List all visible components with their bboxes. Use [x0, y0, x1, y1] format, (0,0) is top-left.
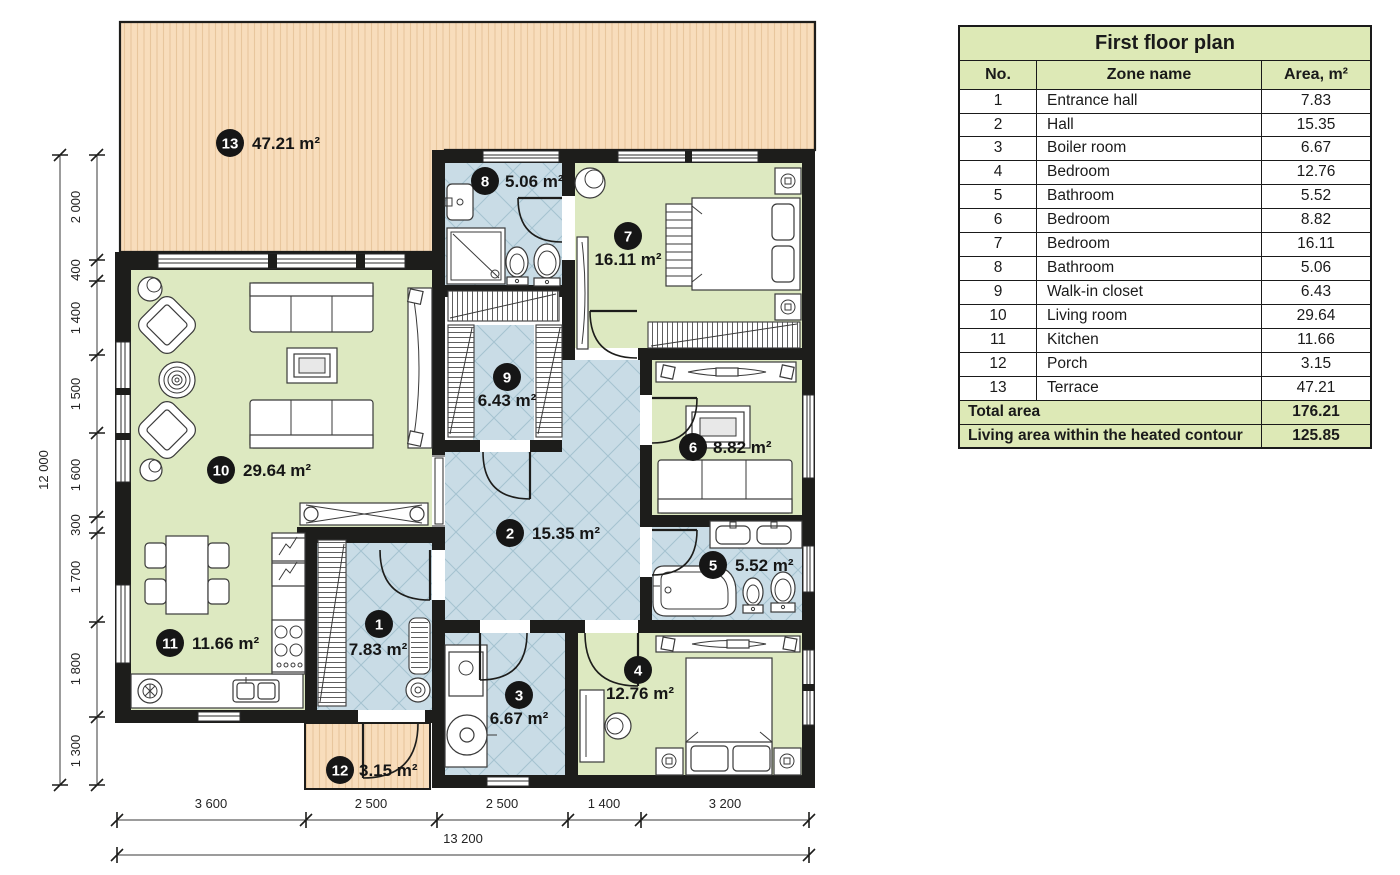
cell-area: 7.83 — [1262, 89, 1372, 113]
table-row: 9 Walk-in closet 6.43 — [959, 280, 1371, 304]
svg-text:7.83 m²: 7.83 m² — [349, 640, 408, 659]
svg-text:47.21 m²: 47.21 m² — [252, 134, 320, 153]
window-living-top — [158, 254, 405, 268]
svg-text:1 800: 1 800 — [68, 653, 83, 686]
rug — [159, 362, 195, 398]
svg-text:1 500: 1 500 — [68, 378, 83, 411]
svg-text:1 300: 1 300 — [68, 735, 83, 768]
window-room5-right — [803, 546, 814, 592]
cell-zone: Boiler room — [1037, 137, 1262, 161]
cell-zone: Bedroom — [1037, 209, 1262, 233]
table-row: 5 Bathroom 5.52 — [959, 185, 1371, 209]
toilet — [534, 244, 560, 286]
room-label-12: 12 3.15 m² — [326, 756, 418, 784]
cell-no: 7 — [959, 233, 1037, 257]
cell-area: 6.43 — [1262, 280, 1372, 304]
cell-no: 11 — [959, 328, 1037, 352]
cell-no: 3 — [959, 137, 1037, 161]
cell-zone: Living room — [1037, 304, 1262, 328]
table-total-row: Total area 176.21 — [959, 400, 1371, 424]
blanket-rack — [666, 204, 692, 286]
total-area-value: 176.21 — [1262, 400, 1372, 424]
svg-text:12 000: 12 000 — [36, 450, 51, 490]
bed — [692, 198, 800, 290]
svg-text:29.64 m²: 29.64 m² — [243, 461, 311, 480]
dimensions-bottom: 3 600 2 500 2 500 1 400 3 200 13 200 — [111, 796, 815, 863]
wardrobe — [318, 540, 346, 706]
cell-no: 13 — [959, 376, 1037, 400]
bidet — [506, 247, 528, 285]
room-label-2: 2 15.35 m² — [496, 519, 600, 547]
svg-text:1 400: 1 400 — [588, 796, 621, 811]
table-living-row: Living area within the heated contour 12… — [959, 424, 1371, 448]
tv-dresser — [656, 636, 800, 652]
cell-no: 6 — [959, 209, 1037, 233]
svg-text:12.76 m²: 12.76 m² — [606, 684, 674, 703]
table-row: 6 Bedroom 8.82 — [959, 209, 1371, 233]
floor-plan: 13 47.21 m² 8 5.06 m² 7 16.11 m² 9 6.43 … — [0, 0, 940, 875]
svg-text:2 000: 2 000 — [68, 191, 83, 224]
window-room6-right — [803, 395, 814, 478]
dimensions-left: 2 000 400 1 400 1 500 1 600 300 1 700 1 … — [36, 149, 105, 791]
kitchen-counter — [131, 674, 303, 708]
sofa — [250, 283, 373, 332]
col-header-zone: Zone name — [1037, 61, 1262, 90]
table-row: 4 Bedroom 12.76 — [959, 161, 1371, 185]
table-row: 2 Hall 15.35 — [959, 113, 1371, 137]
nightstand — [656, 748, 683, 775]
svg-text:11: 11 — [162, 636, 178, 653]
cell-no: 1 — [959, 89, 1037, 113]
svg-text:300: 300 — [68, 514, 83, 536]
room-label-8: 8 5.06 m² — [471, 167, 564, 195]
bench — [409, 618, 430, 674]
table-row: 7 Bedroom 16.11 — [959, 233, 1371, 257]
cell-area: 5.06 — [1262, 257, 1372, 281]
sideboard — [300, 503, 428, 525]
cell-zone: Hall — [1037, 113, 1262, 137]
table-title: First floor plan — [959, 26, 1371, 61]
cell-zone: Terrace — [1037, 376, 1262, 400]
window-living-left — [116, 342, 130, 482]
cell-area: 3.15 — [1262, 352, 1372, 376]
svg-text:2 500: 2 500 — [486, 796, 519, 811]
svg-text:1: 1 — [375, 617, 383, 634]
cell-area: 29.64 — [1262, 304, 1372, 328]
living-area-label: Living area within the heated contour — [959, 424, 1262, 448]
coffee-table — [287, 348, 337, 383]
vent-kitchen-bottom — [198, 712, 240, 721]
svg-text:400: 400 — [68, 259, 83, 281]
window-room4-right — [803, 650, 814, 725]
cell-area: 11.66 — [1262, 328, 1372, 352]
svg-text:13 200: 13 200 — [443, 831, 483, 846]
cell-area: 5.52 — [1262, 185, 1372, 209]
cell-no: 9 — [959, 280, 1037, 304]
radiator — [577, 237, 588, 349]
screenshot-root: 13 47.21 m² 8 5.06 m² 7 16.11 m² 9 6.43 … — [0, 0, 1400, 875]
svg-text:3 200: 3 200 — [709, 796, 742, 811]
table-row: 10 Living room 29.64 — [959, 304, 1371, 328]
cell-no: 5 — [959, 185, 1037, 209]
svg-text:1 700: 1 700 — [68, 561, 83, 594]
svg-text:6: 6 — [689, 440, 697, 457]
svg-text:3.15 m²: 3.15 m² — [359, 761, 418, 780]
col-header-area: Area, m² — [1262, 61, 1372, 90]
sofa — [658, 460, 792, 513]
table-row: 1 Entrance hall 7.83 — [959, 89, 1371, 113]
double-sink-vanity — [710, 521, 802, 548]
room-label-11: 11 11.66 m² — [156, 629, 259, 657]
cell-no: 4 — [959, 161, 1037, 185]
table-row: 3 Boiler room 6.67 — [959, 137, 1371, 161]
table-row: 12 Porch 3.15 — [959, 352, 1371, 376]
cell-zone: Kitchen — [1037, 328, 1262, 352]
living-area-value: 125.85 — [1262, 424, 1372, 448]
sofa — [250, 400, 373, 448]
svg-text:1 600: 1 600 — [68, 459, 83, 492]
svg-text:13: 13 — [222, 136, 239, 153]
cell-no: 8 — [959, 257, 1037, 281]
window-room8-top — [483, 151, 559, 162]
toilet — [771, 572, 795, 612]
room-label-6: 6 8.82 m² — [679, 433, 772, 461]
svg-text:4: 4 — [634, 663, 643, 680]
plant — [140, 459, 162, 481]
svg-text:8: 8 — [481, 174, 489, 191]
wardrobe — [648, 322, 800, 348]
table-row: 11 Kitchen 11.66 — [959, 328, 1371, 352]
cell-zone: Bathroom — [1037, 185, 1262, 209]
cell-zone: Entrance hall — [1037, 89, 1262, 113]
plant — [138, 277, 162, 301]
cell-zone: Porch — [1037, 352, 1262, 376]
col-header-no: No. — [959, 61, 1037, 90]
room-label-13: 13 47.21 m² — [216, 129, 320, 157]
svg-text:16.11 m²: 16.11 m² — [594, 250, 661, 269]
table-header-row: No. Zone name Area, m² — [959, 61, 1371, 90]
svg-text:6.67 m²: 6.67 m² — [490, 709, 549, 728]
vent-room3-bottom — [487, 777, 529, 786]
cell-area: 8.82 — [1262, 209, 1372, 233]
svg-text:5: 5 — [709, 558, 717, 575]
table-row: 13 Terrace 47.21 — [959, 376, 1371, 400]
nightstand — [774, 748, 801, 775]
bed — [686, 658, 772, 775]
cell-area: 6.67 — [1262, 137, 1372, 161]
svg-text:2: 2 — [506, 526, 514, 543]
stove-counter — [272, 533, 305, 674]
cell-area: 15.35 — [1262, 113, 1372, 137]
svg-text:11.66 m²: 11.66 m² — [192, 634, 259, 653]
window-kitchen-left — [116, 585, 130, 663]
svg-text:10: 10 — [213, 463, 230, 480]
table-title-row: First floor plan — [959, 26, 1371, 61]
cell-zone: Walk-in closet — [1037, 280, 1262, 304]
svg-text:2 500: 2 500 — [355, 796, 388, 811]
cell-zone: Bedroom — [1037, 233, 1262, 257]
total-area-label: Total area — [959, 400, 1262, 424]
armchair — [575, 168, 605, 198]
area-table: First floor plan No. Zone name Area, m² … — [958, 25, 1372, 449]
svg-text:12: 12 — [332, 763, 349, 780]
svg-text:15.35 m²: 15.35 m² — [532, 524, 600, 543]
nightstand — [775, 294, 801, 320]
svg-text:5.52 m²: 5.52 m² — [735, 556, 794, 575]
cell-zone: Bathroom — [1037, 257, 1262, 281]
opening-living-hall — [432, 456, 445, 526]
svg-text:8.82 m²: 8.82 m² — [713, 438, 772, 457]
room-label-10: 10 29.64 m² — [207, 456, 311, 484]
cell-no: 12 — [959, 352, 1037, 376]
sink — [445, 184, 473, 220]
cell-area: 16.11 — [1262, 233, 1372, 257]
svg-text:5.06 m²: 5.06 m² — [505, 172, 564, 191]
svg-text:6.43 m²: 6.43 m² — [478, 391, 537, 410]
cell-no: 2 — [959, 113, 1037, 137]
svg-text:1 400: 1 400 — [68, 302, 83, 335]
cell-area: 47.21 — [1262, 376, 1372, 400]
svg-text:7: 7 — [624, 229, 632, 246]
rug — [406, 678, 430, 702]
nightstand — [775, 168, 801, 194]
svg-text:3: 3 — [515, 688, 523, 705]
svg-text:3 600: 3 600 — [195, 796, 228, 811]
room-label-5: 5 5.52 m² — [699, 551, 794, 579]
shower — [447, 228, 505, 284]
window-room7-top — [618, 151, 758, 162]
table-row: 8 Bathroom 5.06 — [959, 257, 1371, 281]
svg-text:9: 9 — [503, 370, 511, 387]
bidet — [743, 578, 763, 613]
tv-unit — [408, 288, 432, 448]
tv-dresser — [656, 362, 796, 382]
cell-area: 12.76 — [1262, 161, 1372, 185]
cell-no: 10 — [959, 304, 1037, 328]
cell-zone: Bedroom — [1037, 161, 1262, 185]
